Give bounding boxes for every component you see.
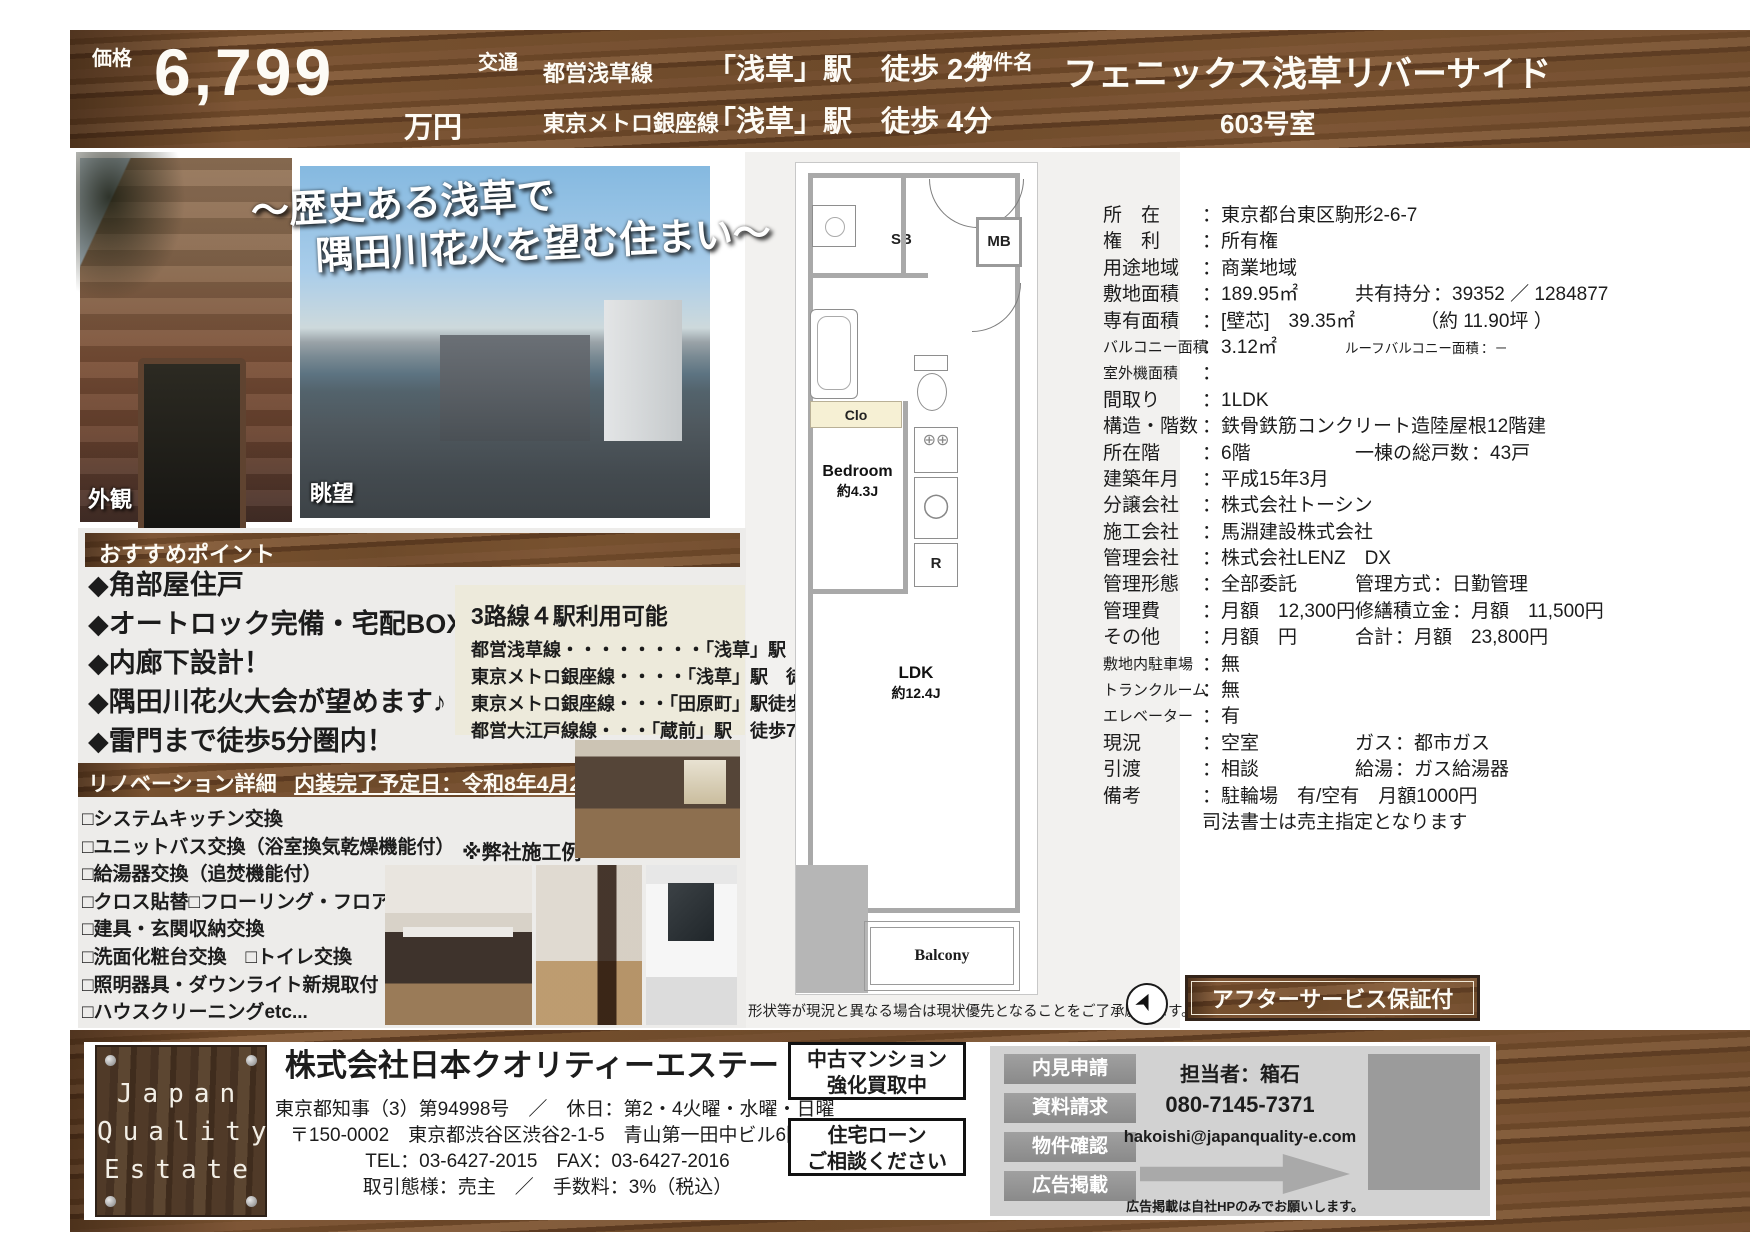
company-name: 株式会社日本クオリティーエステート [275, 1040, 820, 1085]
property-flyer: 価格 6,799 万円 交通 都営浅草線 「浅草」駅 徒歩 2分 東京メトロ銀座… [0, 0, 1754, 1240]
detail-row-parking: 敷地内駐車場：無 [1090, 649, 1752, 675]
detail-row-outdoor-unit: 室外機面積： [1090, 358, 1752, 384]
interior-photo-room [575, 740, 740, 858]
price-label: 価格 [92, 42, 132, 71]
point-item: ◆雷門まで徒歩5分圏内！ [88, 726, 468, 756]
interior-photo-washbasin [646, 865, 737, 1025]
ad-posting-button[interactable]: 広告掲載 [1004, 1171, 1136, 1201]
toilet-tank [914, 355, 948, 371]
header-bar: 価格 6,799 万円 交通 都営浅草線 「浅草」駅 徒歩 2分 東京メトロ銀座… [70, 30, 1750, 148]
common-area-block [796, 865, 868, 993]
floor-plan: MB SB Clo Bedroom 約4.3J ⊕⊕ ◯ R LDK 約12.4… [795, 162, 1038, 995]
detail-row-floor-area: 専有面積：[壁芯] 39.35㎡（約 11.90坪 ） [1090, 306, 1752, 332]
point-item: ◆内廊下設計！ [88, 648, 468, 678]
viewing-request-button[interactable]: 内見申請 [1004, 1054, 1136, 1084]
company-tel: TEL：03-6427-2015 FAX：03-6427-2016 [275, 1149, 820, 1175]
room-number: 603号室 [1220, 104, 1315, 141]
access-item: 都営浅草線・・・・・・・・「浅草」駅 徒歩2分 [471, 637, 729, 664]
access-item: 東京メトロ銀座線・・・・「浅草」駅 徒歩4分 [471, 664, 729, 691]
point-item: ◆オートロック完備・宅配BOX有 [88, 609, 468, 639]
interior-photo-hallway [536, 865, 642, 1025]
transit-label: 交通 [478, 46, 518, 75]
detail-row-structure: 構造・階数：鉄骨鉄筋コンクリート造陸屋根12階建 [1090, 411, 1752, 437]
bedroom-label: Bedroom 約4.3J [810, 463, 905, 501]
ad-note: 広告掲載は自社HPのみでお願いします。 [1120, 1196, 1370, 1215]
detail-row-management-company: 管理会社：株式会社LENZ DX [1090, 543, 1752, 569]
detail-row-remarks2: 司法書士は売主指定となります [1090, 807, 1752, 833]
after-service-label: アフターサービス保証付 [1191, 981, 1474, 1015]
detail-row-remarks: 備考：駐輪場 有/空有 月額1000円 [1090, 781, 1752, 807]
detail-row-elevator: エレベーター：有 [1090, 701, 1752, 727]
company-license: 東京都知事（3）第94998号 ／ 休日：第2・4火曜・水曜・日曜 [275, 1097, 820, 1123]
detail-row-layout: 間取り：1LDK [1090, 385, 1752, 411]
detail-row-balcony-area: バルコニー面積：3.12㎡ルーフバルコニー面積：－ [1090, 332, 1752, 358]
detail-row-handover: 引渡：相談給湯：ガス給湯器 [1090, 754, 1752, 780]
detail-row-status: 現況：空室ガス：都市ガス [1090, 728, 1752, 754]
transit-line-2: 東京メトロ銀座線 [543, 106, 719, 138]
price-value: 6,799 [154, 34, 334, 110]
photo-placeholder [1368, 1054, 1480, 1190]
detail-row-management-form: 管理形態：全部委託管理方式：日勤管理 [1090, 569, 1752, 595]
tree-silhouette [76, 152, 186, 302]
transit-dest-1: 「浅草」駅 徒歩 2分 [707, 46, 992, 88]
contact-phone: 080-7145-7371 [1130, 1092, 1350, 1118]
detail-row-management-fee: 管理費：月額 12,300円修繕積立金：月額 11,500円 [1090, 596, 1752, 622]
transit-dest-2: 「浅草」駅 徒歩 4分 [707, 98, 992, 140]
renovation-title: リノベーション詳細 [88, 773, 277, 796]
home-loan-box: 住宅ローン ご相談ください [788, 1118, 966, 1176]
company-terms: 取引態様：売主 ／ 手数料：3%（税込） [275, 1175, 820, 1201]
detail-row-trunk-room: トランクルーム：無 [1090, 675, 1752, 701]
access-box: 3路線４駅利用可能 都営浅草線・・・・・・・・「浅草」駅 徒歩2分 東京メトロ銀… [455, 585, 745, 735]
after-service-badge: アフターサービス保証付 [1185, 975, 1480, 1021]
renovation-item: □システムキッチン交換 [82, 806, 562, 834]
exterior-photo-label: 外観 [88, 482, 132, 514]
renovation-schedule: 内装完了予定日：令和8年4月20日 [294, 773, 614, 796]
access-title: 3路線４駅利用可能 [471, 597, 729, 631]
points-header-bar: おすすめポイント [85, 533, 740, 567]
stove-fixture: ⊕⊕ [914, 427, 958, 473]
company-address: 〒150-0002 東京都渋谷区渋谷2-1-5 青山第一田中ビル6階 [275, 1123, 820, 1149]
toilet-fixture [917, 373, 947, 411]
company-info: 株式会社日本クオリティーエステート 東京都知事（3）第94998号 ／ 休日：第… [275, 1040, 820, 1201]
contact-panel: 内見申請 資料請求 物件確認 広告掲載 担当者：箱石 080-7145-7371… [990, 1046, 1490, 1216]
arrow-icon [1140, 1154, 1350, 1194]
construction-example-note: ※弊社施工例 [462, 836, 581, 865]
wall [808, 273, 928, 278]
property-name: フェニックス浅草リバーサイド [1063, 46, 1551, 97]
logo-line: Estate [97, 1151, 265, 1189]
document-request-button[interactable]: 資料請求 [1004, 1093, 1136, 1123]
logo-line: Quality [97, 1113, 265, 1151]
contact-email[interactable]: hakoishi@japanquality-e.com [1114, 1128, 1366, 1147]
detail-row-floor: 所在階：6階一棟の総戸数：43戸 [1090, 438, 1752, 464]
balcony: Balcony [864, 921, 1020, 991]
wall [901, 173, 906, 278]
detail-row-rights: 権 利：所有権 [1090, 226, 1752, 252]
detail-row-location: 所 在：東京都台東区駒形2-6-7 [1090, 200, 1752, 226]
transit-line-1: 都営浅草線 [543, 56, 653, 88]
closet: Clo [810, 401, 902, 428]
wall [808, 589, 908, 594]
detail-row-built: 建築年月：平成15年3月 [1090, 464, 1752, 490]
compass-icon: ➤ [1126, 983, 1168, 1025]
view-photo-label: 眺望 [310, 476, 354, 508]
property-details: 所 在：東京都台東区駒形2-6-7 権 利：所有権 用途地域：商業地域 敷地面積… [1090, 200, 1752, 833]
detail-row-builder: 施工会社：馬淵建設株式会社 [1090, 517, 1752, 543]
rooftop-building [440, 335, 590, 441]
meter-box: MB [976, 217, 1022, 267]
footer: Japan Quality Estate 株式会社日本クオリティーエステート 東… [70, 1030, 1750, 1232]
used-mansion-box: 中古マンション 強化買取中 [788, 1042, 966, 1100]
access-item: 東京メトロ銀座線・・・「田原町」駅徒歩9分 [471, 691, 729, 718]
ldk-label: LDK 約12.4J [851, 663, 981, 703]
company-logo: Japan Quality Estate [95, 1045, 267, 1217]
building-entrance [138, 358, 246, 528]
sink-fixture: ◯ [914, 477, 958, 539]
kitchen-counter [403, 927, 513, 937]
contact-person: 担当者：箱石 [1130, 1058, 1350, 1087]
bathtub-fixture [810, 309, 858, 399]
balcony-label: Balcony [870, 927, 1014, 985]
detail-row-other-fee: その他：月額 円合計：月額 23,800円 [1090, 622, 1752, 648]
point-item: ◆角部屋住戸 [88, 570, 468, 600]
points-title: おすすめポイント [99, 537, 275, 569]
white-building [604, 300, 682, 441]
interior-photo-kitchen [385, 865, 532, 1025]
price-unit: 万円 [404, 104, 462, 146]
point-item: ◆隅田川花火大会が望めます♪ [88, 687, 468, 717]
washbasin-fixture [812, 205, 856, 247]
detail-row-developer: 分譲会社：株式会社トーシン [1090, 490, 1752, 516]
washbasin-mirror [668, 883, 714, 941]
refrigerator-space: R [914, 543, 958, 587]
property-name-label: 物件名 [973, 46, 1033, 75]
detail-row-zoning: 用途地域：商業地域 [1090, 253, 1752, 279]
logo-line: Japan [97, 1075, 265, 1113]
room-window [684, 760, 726, 804]
points-list: ◆角部屋住戸 ◆オートロック完備・宅配BOX有 ◆内廊下設計！ ◆隅田川花火大会… [88, 570, 468, 765]
detail-row-land-area: 敷地面積：189.95㎡共有持分：39352 ／ 1284877 [1090, 279, 1752, 305]
